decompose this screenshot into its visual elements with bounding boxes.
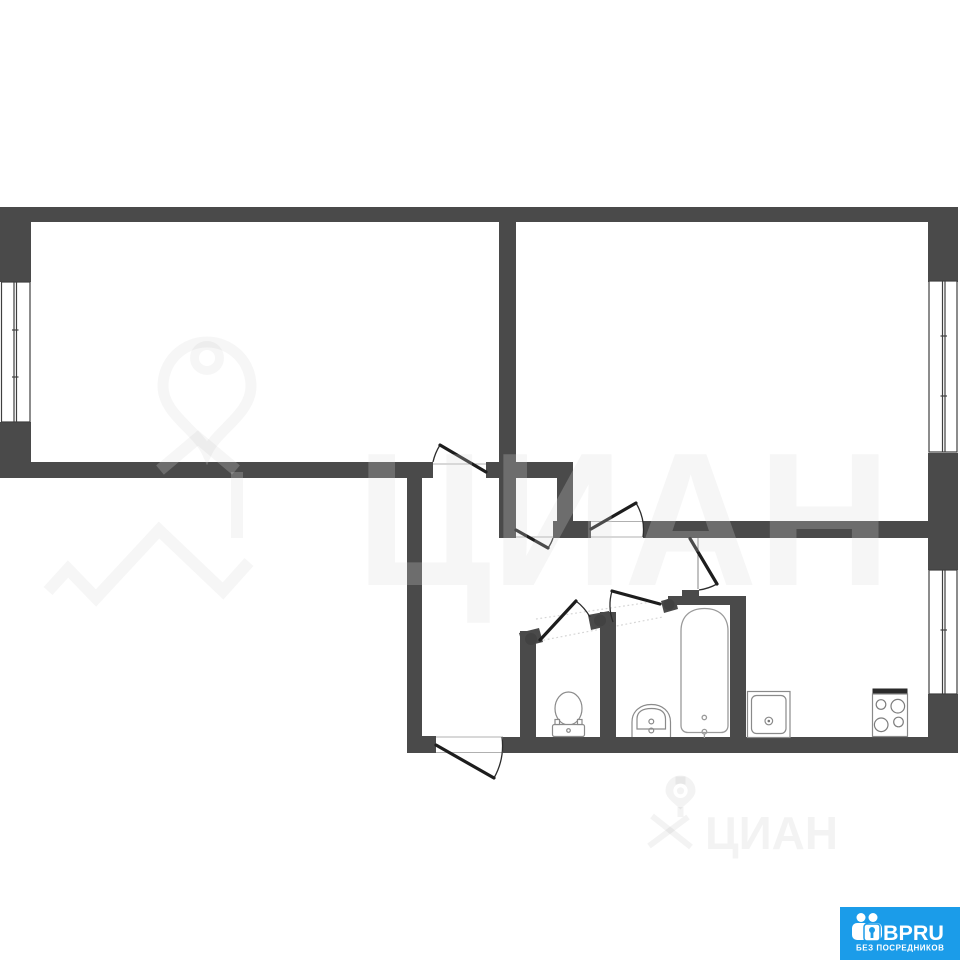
svg-text:ЦИАН: ЦИАН xyxy=(705,807,838,859)
svg-text:ЦИАН: ЦИАН xyxy=(356,414,891,626)
svg-text:BPRU: BPRU xyxy=(883,921,944,945)
svg-text:БЕЗ ПОСРЕДНИКОВ: БЕЗ ПОСРЕДНИКОВ xyxy=(856,944,944,953)
